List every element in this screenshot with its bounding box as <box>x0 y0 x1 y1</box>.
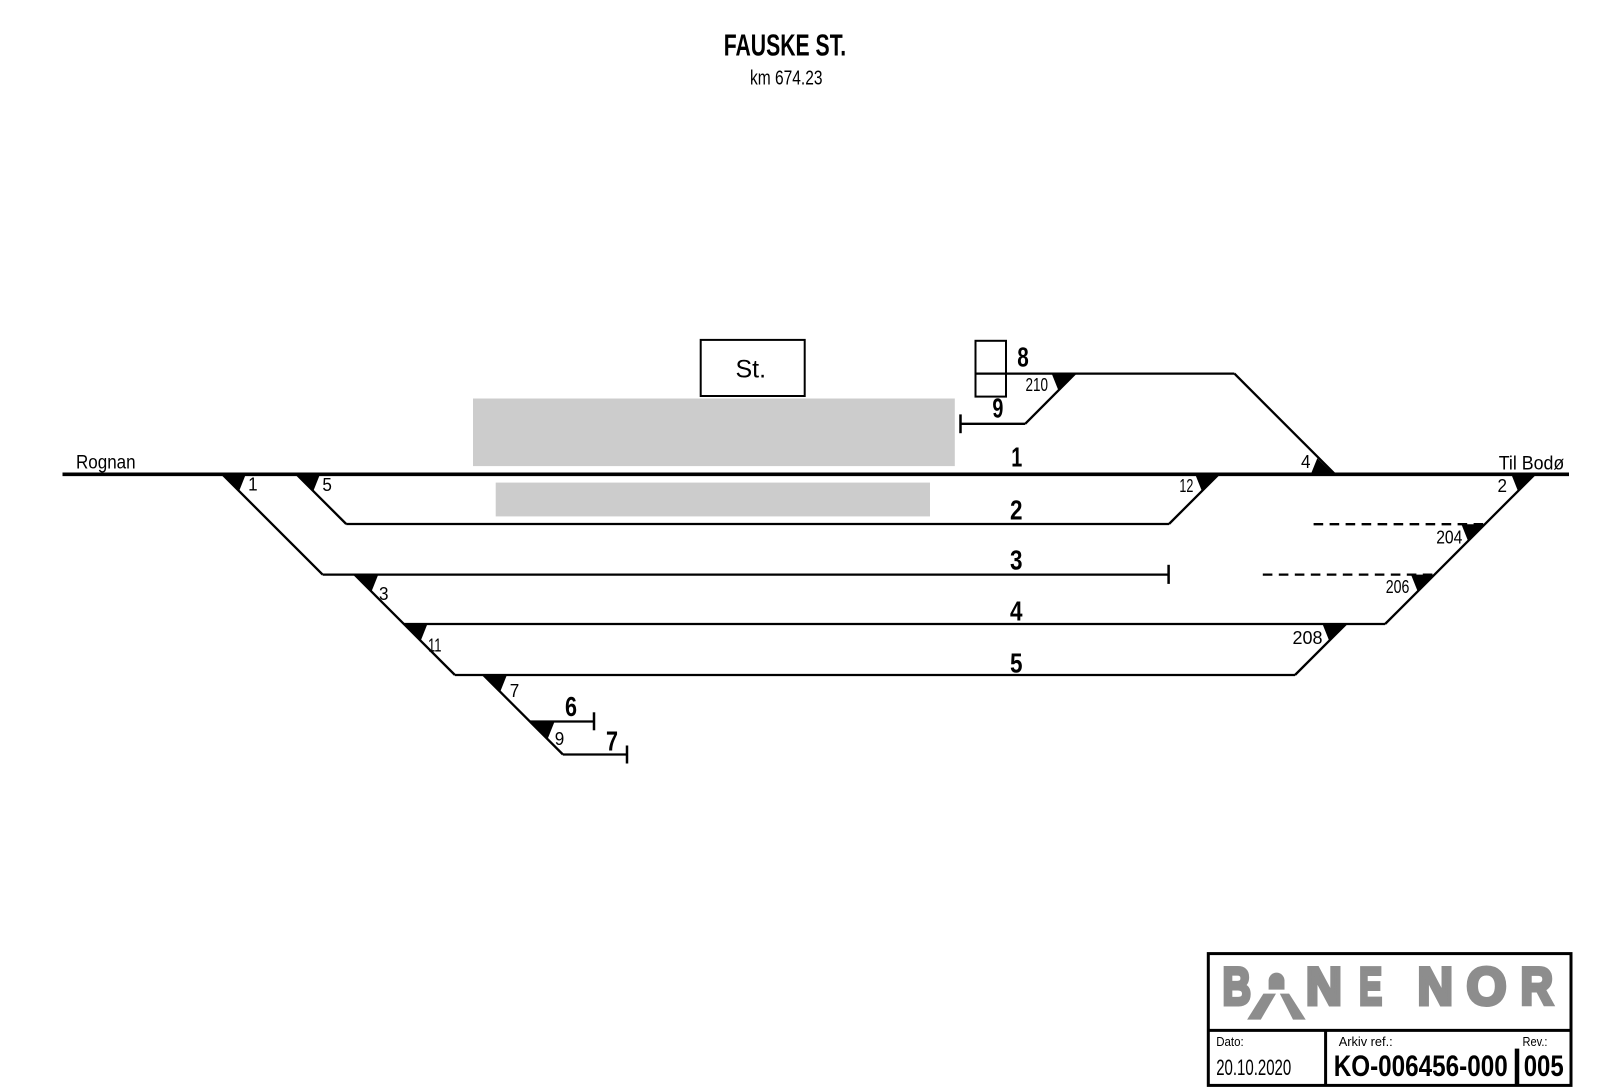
svg-text:1: 1 <box>248 474 258 495</box>
svg-text:KO-006456-000: KO-006456-000 <box>1334 1050 1508 1083</box>
svg-text:B: B <box>1223 958 1252 1017</box>
svg-text:Rognan: Rognan <box>76 452 136 473</box>
svg-text:R: R <box>1521 958 1554 1017</box>
svg-text:5: 5 <box>322 474 332 495</box>
svg-text:4: 4 <box>1301 451 1311 472</box>
svg-text:005: 005 <box>1524 1050 1564 1083</box>
svg-text:O: O <box>1467 958 1507 1017</box>
svg-text:20.10.2020: 20.10.2020 <box>1216 1055 1291 1080</box>
svg-text:2: 2 <box>1010 495 1023 526</box>
svg-text:8: 8 <box>1017 342 1028 373</box>
svg-text:km 674.23: km 674.23 <box>750 67 823 90</box>
svg-text:9: 9 <box>555 728 565 749</box>
svg-text:1: 1 <box>1011 441 1022 472</box>
svg-text:3: 3 <box>379 583 389 604</box>
svg-text:N: N <box>1306 958 1342 1017</box>
svg-text:208: 208 <box>1293 627 1323 648</box>
svg-text:206: 206 <box>1386 576 1410 597</box>
svg-text:E: E <box>1359 958 1382 1017</box>
svg-text:N: N <box>1418 958 1454 1017</box>
svg-text:Arkiv ref.:: Arkiv ref.: <box>1339 1034 1393 1049</box>
svg-text:204: 204 <box>1436 527 1462 548</box>
svg-text:7: 7 <box>510 680 520 701</box>
svg-text:2: 2 <box>1498 475 1508 496</box>
svg-text:6: 6 <box>565 691 577 722</box>
svg-text:3: 3 <box>1010 545 1023 576</box>
svg-text:4: 4 <box>1010 595 1023 626</box>
svg-text:9: 9 <box>992 392 1003 423</box>
svg-text:5: 5 <box>1010 648 1023 679</box>
svg-text:7: 7 <box>606 725 618 756</box>
svg-text:FAUSKE ST.: FAUSKE ST. <box>724 29 847 63</box>
svg-text:12: 12 <box>1179 475 1193 496</box>
svg-text:11: 11 <box>428 635 442 656</box>
svg-text:Rev.:: Rev.: <box>1523 1034 1548 1049</box>
svg-text:Dato:: Dato: <box>1216 1034 1244 1049</box>
svg-text:Til Bodø: Til Bodø <box>1499 452 1565 474</box>
svg-text:210: 210 <box>1026 374 1049 395</box>
svg-text:St.: St. <box>736 356 767 384</box>
